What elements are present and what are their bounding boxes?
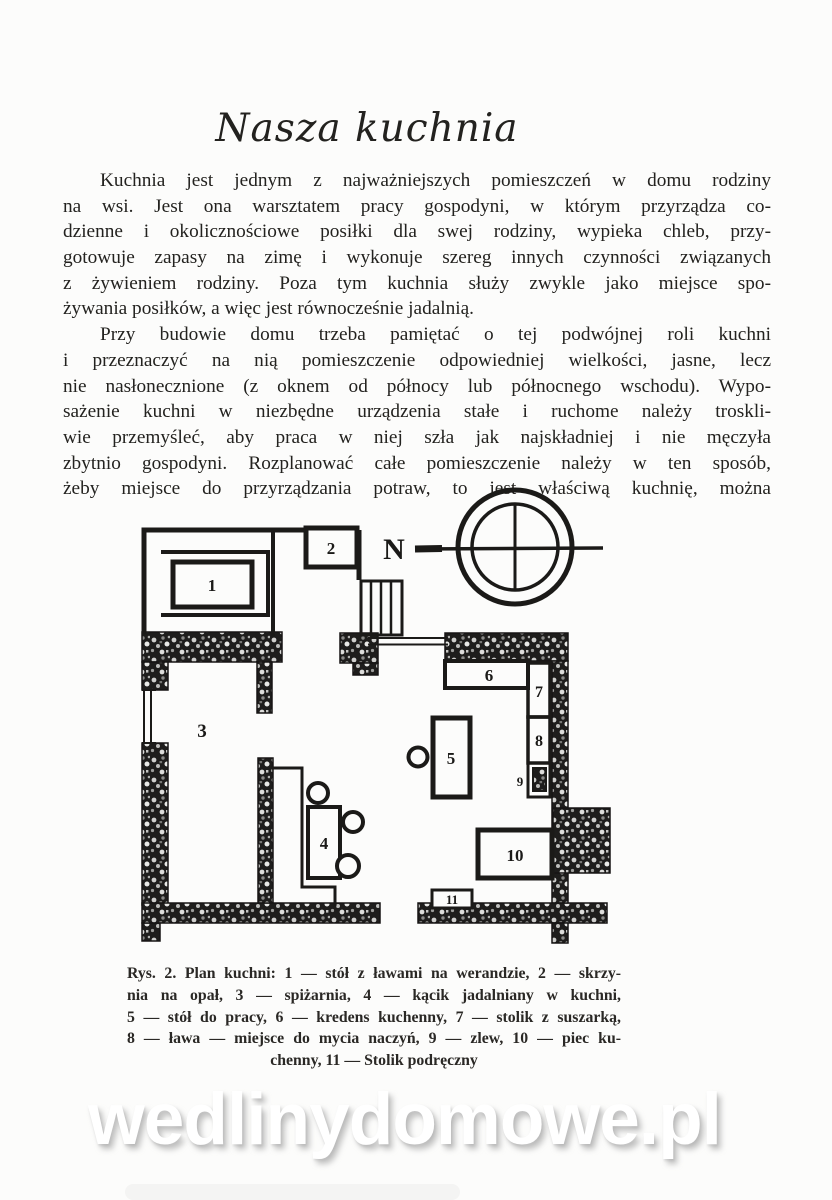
label-5: 5 [447,749,456,768]
label-8: 8 [535,733,543,750]
chair [337,855,359,877]
compass-icon [415,490,603,604]
watermark: wedlinydomowe.pl [88,1078,721,1161]
scan-artifact [125,1184,460,1200]
figure-caption: Rys. 2. Plan kuchni: 1 — stół z ławami n… [127,963,621,1072]
caption-line: Rys. 2. Plan kuchni: 1 — stół z ławami n… [127,963,621,985]
wall-left-lower [142,743,168,905]
stool [409,748,428,767]
text-line: z żywieniem rodziny. Poza tym kuchnia sł… [63,271,771,297]
wall-entry-notch [353,663,378,675]
stairs [361,581,402,635]
label-1: 1 [208,576,217,595]
caption-line: 5 — stół do pracy, 6 — kredens kuchenny,… [127,1007,621,1029]
book-page: Nasza kuchnia Kuchnia jest jednym z najw… [0,0,832,1200]
text-line: Przy budowie domu trzeba pamiętać o tej … [63,322,771,348]
veranda [144,530,306,635]
label-4: 4 [320,834,329,853]
kitchen-floor-plan: 1 2 3 4 5 6 7 8 9 10 11 N [110,475,670,945]
text-line: gotowuje zapasy na zimę i wykonuje szere… [63,245,771,271]
wall-top-left [142,632,282,662]
wall-right-chimney [553,808,610,873]
label-9: 9 [517,774,524,789]
body-text: Kuchnia jest jednym z najważniejszych po… [63,168,771,502]
door-threshold [368,638,448,645]
wall-bottom-stub [552,923,568,943]
label-3: 3 [197,721,207,742]
text-line: Kuchnia jest jednym z najważniejszych po… [63,168,771,194]
label-2: 2 [327,539,336,558]
text-line: zbytnio gospodyni. Rozplanować całe pomi… [63,451,771,477]
wall-left-stub [142,923,160,941]
label-11: 11 [446,892,458,907]
caption-line: nia na opał, 3 — spiżarnia, 4 — kącik ja… [127,985,621,1007]
wall-pier [257,662,272,713]
caption-line: chenny, 11 — Stolik podręczny [127,1050,621,1072]
text-line: wie przemyśleć, aby praca w niej szła ja… [63,425,771,451]
text-line: dzienne i okolicznościowe posiłki dla sw… [63,219,771,245]
label-10: 10 [507,846,524,865]
text-line: i przeznaczyć na nią pomieszczenie odpow… [63,348,771,374]
wall-middle [258,758,273,903]
paragraph-1: Kuchnia jest jednym z najważniejszych po… [63,168,771,322]
text-line: nie nasłonecznione (z oknem od północy l… [63,374,771,400]
label-6: 6 [485,666,494,685]
wall-top-right [445,633,568,661]
compass-north-label: N [383,533,405,566]
wall-bottom-left [142,903,380,923]
caption-line: 8 — ława — miejsce do mycia naczyń, 9 — … [127,1028,621,1050]
page-title: Nasza kuchnia [0,106,734,151]
wall-left-upper [142,662,168,690]
chair [308,783,328,803]
text-line: żywania posiłków, a więc jest równocześn… [63,296,771,322]
label-7: 7 [535,684,543,701]
chair [343,812,363,832]
sink [533,768,546,791]
text-line: sażenie kuchni w niezbędne urządzenia st… [63,399,771,425]
kitchen-furniture [273,661,552,908]
window-left [142,690,156,743]
text-line: na wsi. Jest ona warsztatem pracy gospod… [63,194,771,220]
